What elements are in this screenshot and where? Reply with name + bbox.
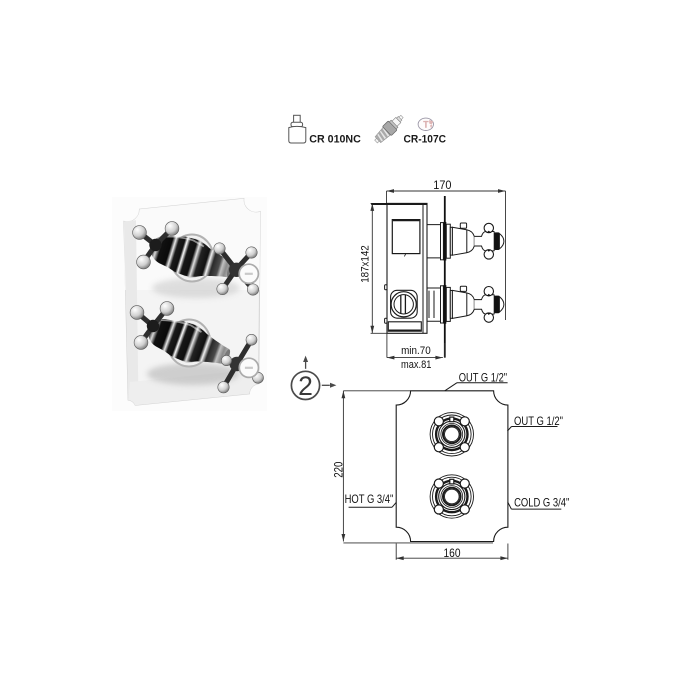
svg-text:160: 160 — [444, 548, 461, 560]
svg-text:max.81: max.81 — [401, 359, 431, 371]
svg-text:OUT G 1/2": OUT G 1/2" — [514, 415, 563, 428]
svg-text:CR-107C: CR-107C — [404, 133, 447, 145]
svg-text:187x142: 187x142 — [360, 245, 372, 283]
svg-text:170: 170 — [433, 180, 451, 192]
svg-text:CR 010NC: CR 010NC — [309, 133, 361, 145]
svg-text:HOT G 3/4": HOT G 3/4" — [345, 493, 394, 506]
svg-text:COLD G 3/4": COLD G 3/4" — [514, 496, 569, 509]
svg-text:2: 2 — [298, 371, 313, 401]
svg-text:min.70: min.70 — [401, 345, 431, 357]
svg-text:220: 220 — [333, 462, 345, 478]
